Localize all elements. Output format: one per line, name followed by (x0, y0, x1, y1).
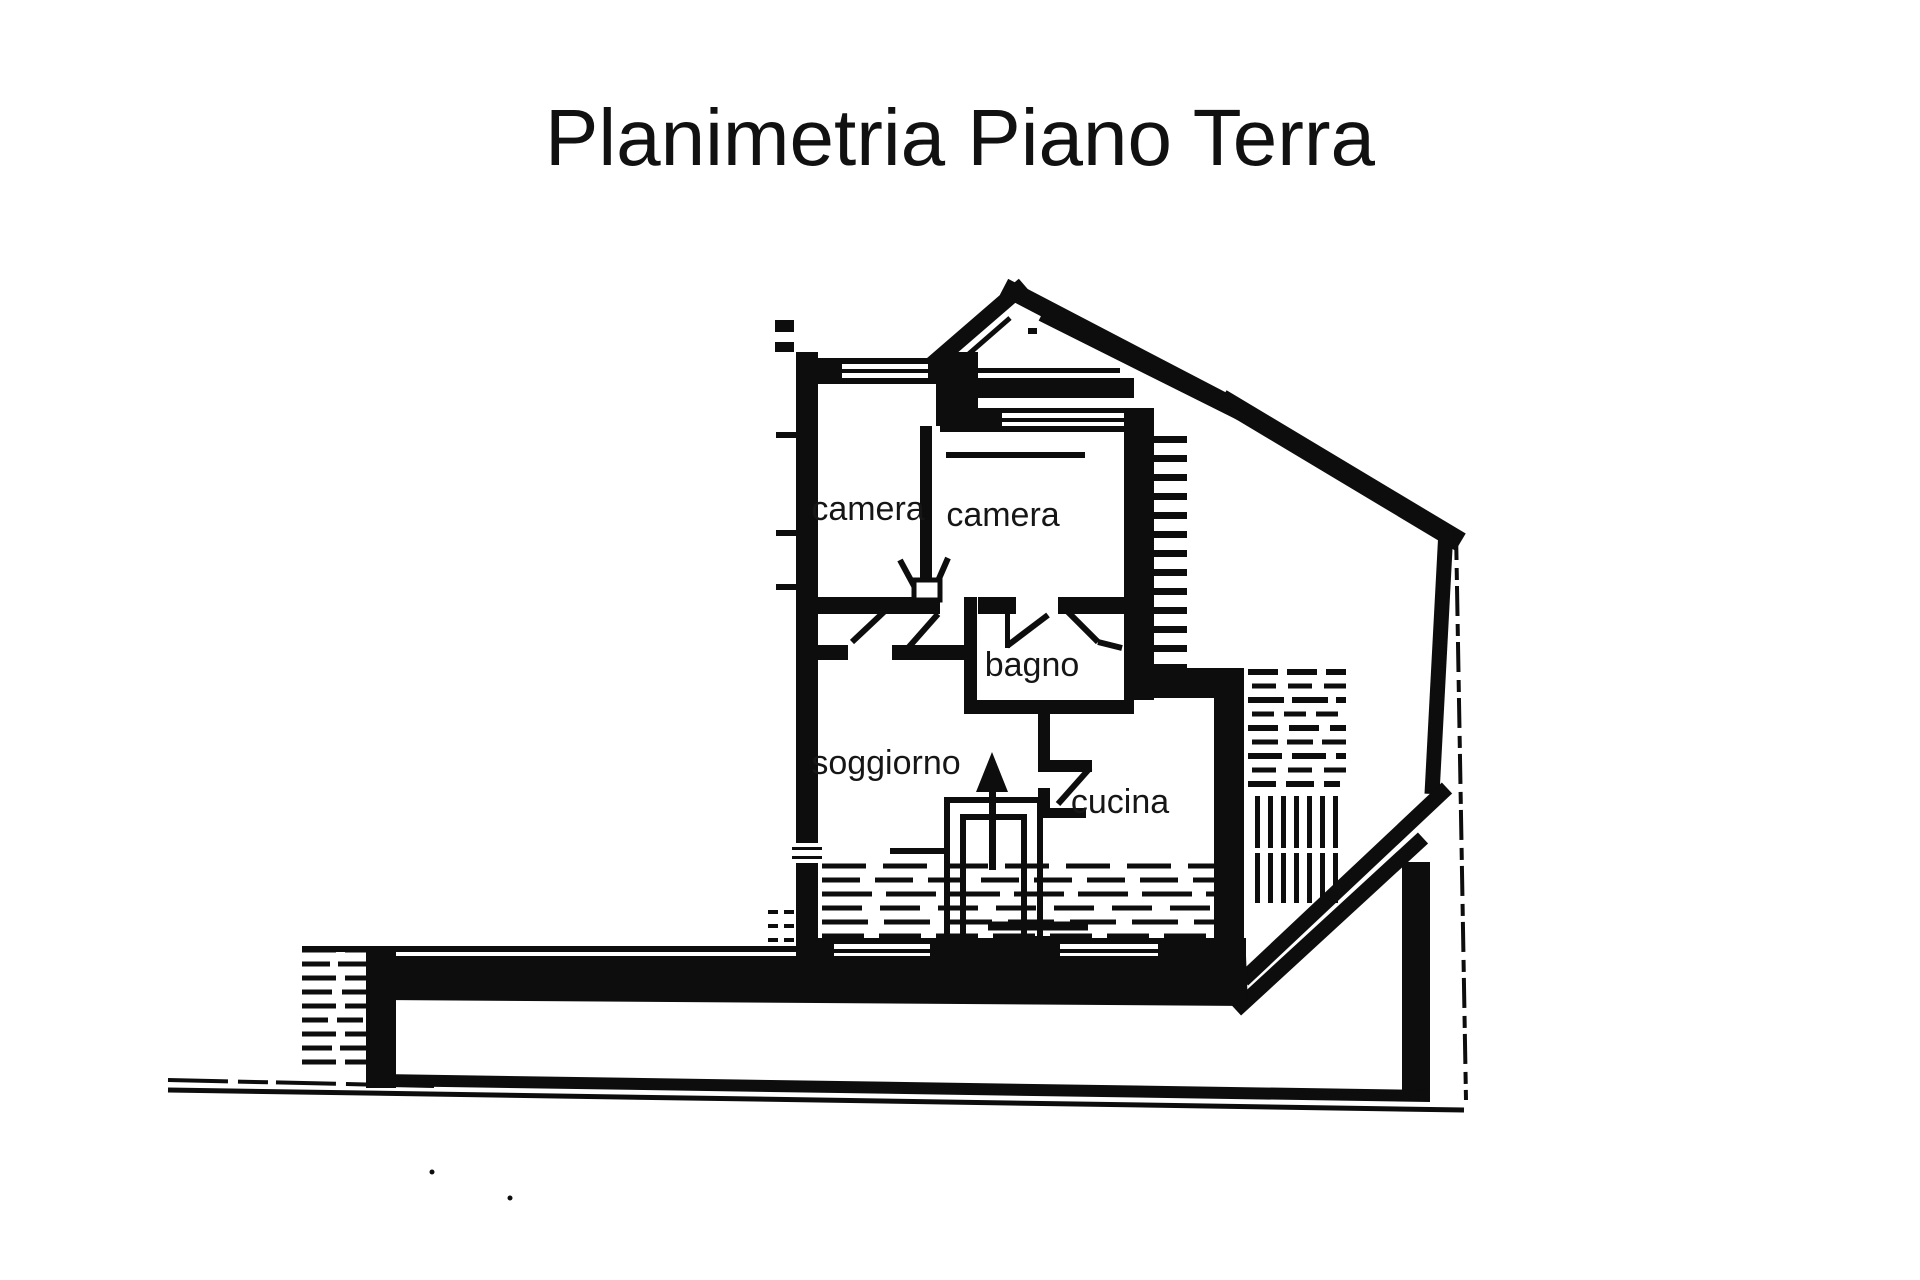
room-label-bagno: bagno (985, 646, 1080, 684)
room-label-camera-1: camera (811, 490, 924, 528)
room-label-soggiorno: soggiorno (811, 744, 960, 782)
entrance-arrow (976, 752, 1008, 870)
floor-plan-drawing: camera camera bagno soggiorno cucina (0, 0, 1920, 1280)
room-label-cucina: cucina (1071, 783, 1169, 821)
scan-specks (430, 1170, 513, 1201)
scanned-floor-plan-page: Planimetria Piano Terra (0, 0, 1920, 1280)
exterior-tick-marks (775, 320, 796, 590)
room-label-camera-2: camera (946, 496, 1059, 534)
terrace-hatching (768, 866, 1238, 940)
entrance-stoop (890, 800, 1040, 938)
stair-hatch-area (1248, 672, 1346, 878)
left-hatch-block (302, 950, 368, 1062)
